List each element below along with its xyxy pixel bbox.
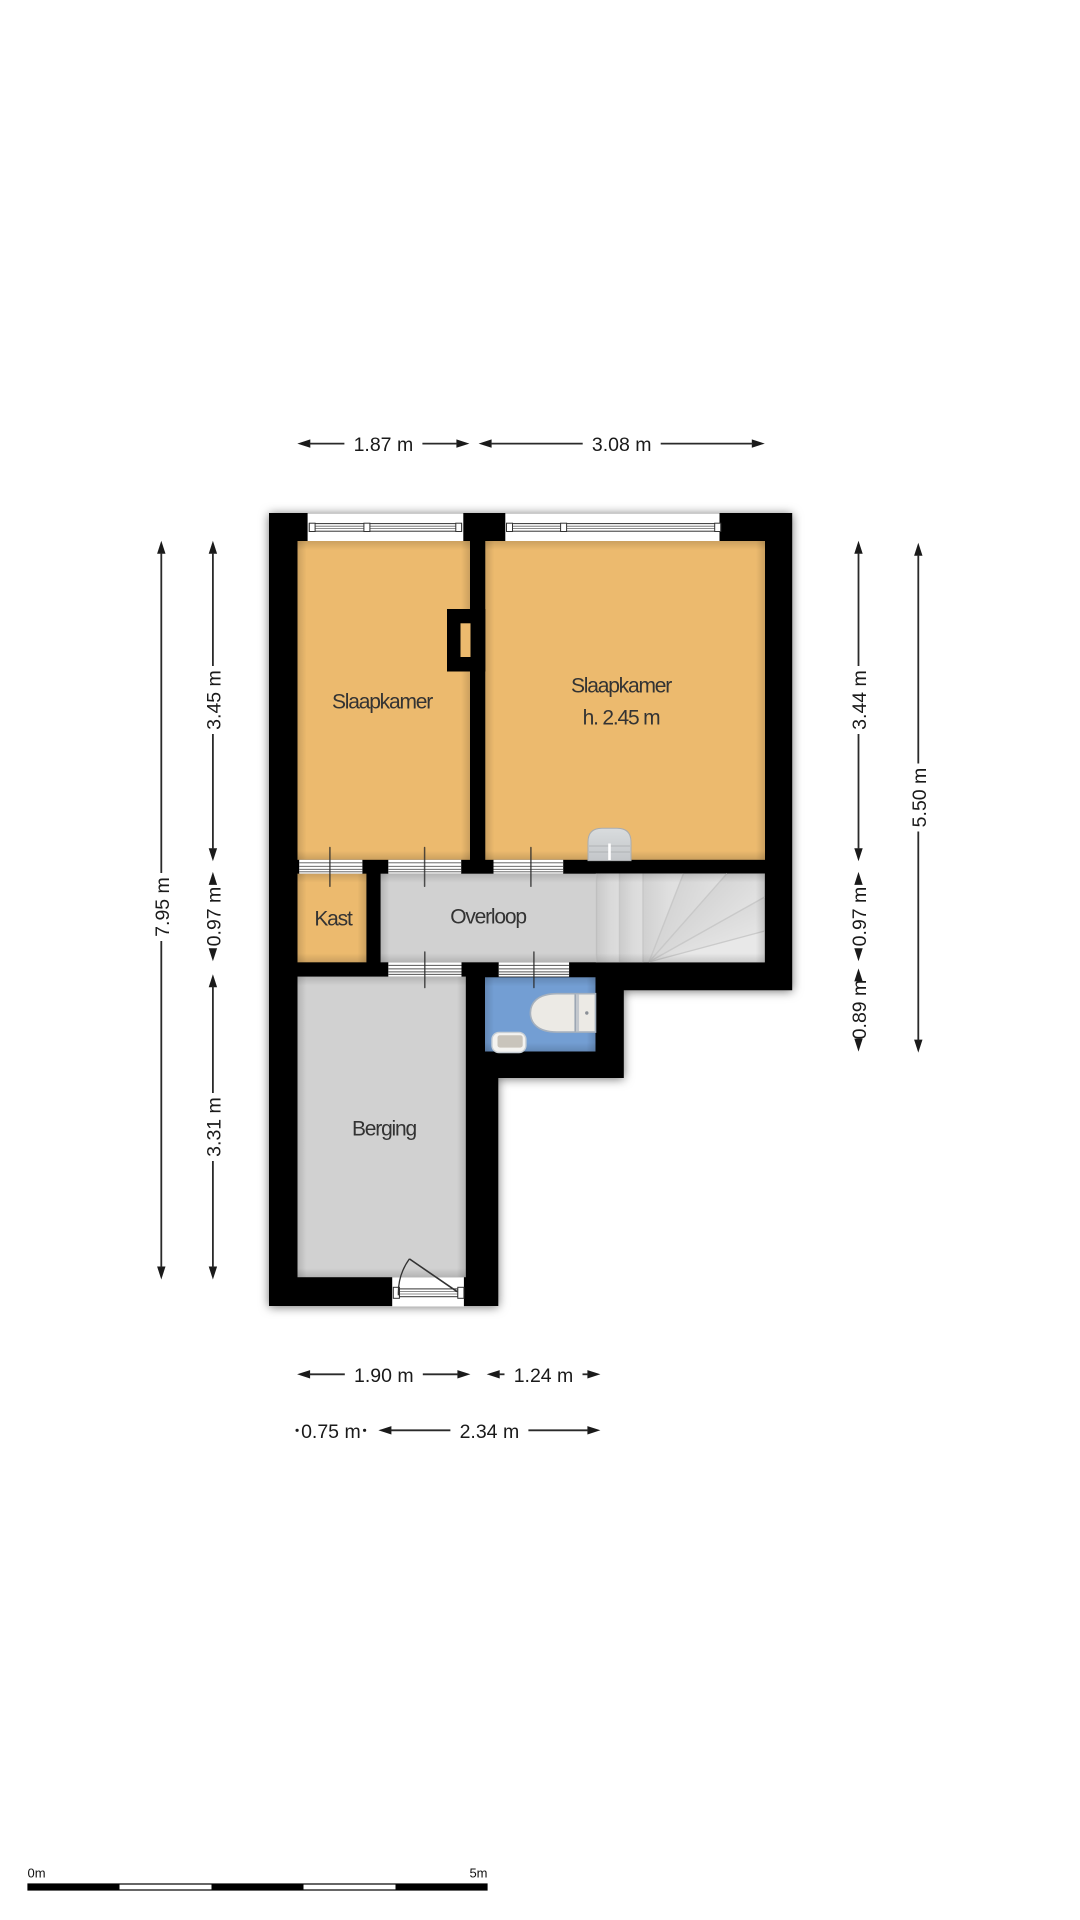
- svg-text:Slaapkamer: Slaapkamer: [332, 691, 433, 714]
- svg-text:7.95 m: 7.95 m: [152, 877, 174, 937]
- svg-text:h. 2.45 m: h. 2.45 m: [583, 707, 660, 730]
- svg-text:3.08 m: 3.08 m: [592, 434, 652, 456]
- svg-text:2.34 m: 2.34 m: [460, 1421, 520, 1443]
- svg-text:0.75 m: 0.75 m: [301, 1421, 361, 1443]
- svg-text:1.90 m: 1.90 m: [354, 1365, 414, 1387]
- svg-text:Berging: Berging: [352, 1118, 417, 1141]
- svg-text:Overloop: Overloop: [450, 906, 526, 929]
- svg-text:3.45 m: 3.45 m: [203, 670, 225, 730]
- svg-text:Slaapkamer: Slaapkamer: [571, 675, 672, 698]
- svg-text:0.89 m: 0.89 m: [849, 980, 871, 1040]
- svg-text:0.97 m: 0.97 m: [203, 887, 225, 947]
- svg-text:Kast: Kast: [314, 908, 353, 931]
- svg-text:0.97 m: 0.97 m: [849, 887, 871, 947]
- svg-text:5m: 5m: [469, 1866, 487, 1881]
- svg-text:1.87 m: 1.87 m: [354, 434, 414, 456]
- svg-text:5.50 m: 5.50 m: [909, 768, 931, 828]
- svg-text:3.31 m: 3.31 m: [203, 1097, 225, 1157]
- svg-text:3.44 m: 3.44 m: [849, 670, 871, 730]
- svg-text:1.24 m: 1.24 m: [514, 1365, 574, 1387]
- svg-text:0m: 0m: [28, 1866, 46, 1881]
